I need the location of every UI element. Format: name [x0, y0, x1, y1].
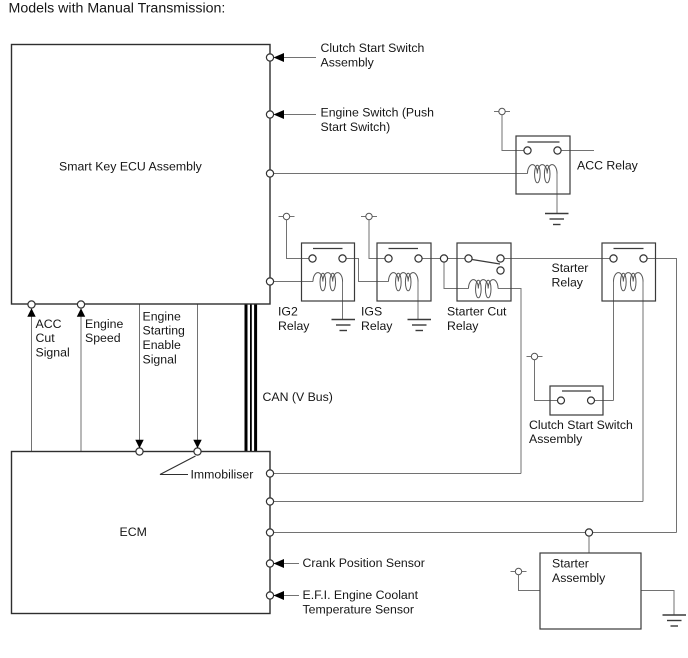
svg-text:Crank Position Sensor: Crank Position Sensor — [303, 556, 425, 570]
svg-text:Cut: Cut — [36, 331, 56, 345]
svg-text:Smart Key ECU Assembly: Smart Key ECU Assembly — [59, 160, 203, 174]
svg-text:Engine Switch (Push: Engine Switch (Push — [321, 106, 435, 120]
svg-text:Models with Manual Transmissio: Models with Manual Transmission: — [9, 1, 226, 17]
svg-text:Assembly: Assembly — [529, 432, 583, 446]
svg-text:Speed: Speed — [85, 331, 121, 345]
svg-text:IG2: IG2 — [278, 305, 298, 319]
svg-text:ECM: ECM — [120, 525, 147, 539]
svg-text:Clutch Start Switch: Clutch Start Switch — [321, 41, 425, 55]
svg-text:Starter Cut: Starter Cut — [447, 305, 507, 319]
svg-text:Starting: Starting — [143, 324, 186, 338]
svg-text:Relay: Relay — [278, 319, 310, 333]
svg-text:IGS: IGS — [361, 305, 382, 319]
svg-text:Assembly: Assembly — [552, 571, 606, 585]
svg-text:Engine: Engine — [85, 317, 123, 331]
svg-text:Temperature Sensor: Temperature Sensor — [303, 602, 414, 616]
svg-text:Relay: Relay — [361, 319, 393, 333]
svg-text:Starter: Starter — [552, 261, 589, 275]
svg-text:Start Switch): Start Switch) — [321, 120, 391, 134]
svg-text:CAN (V Bus): CAN (V Bus) — [263, 390, 333, 404]
svg-text:Clutch Start Switch: Clutch Start Switch — [529, 418, 633, 432]
svg-text:Signal: Signal — [36, 346, 70, 360]
svg-text:Engine: Engine — [143, 309, 181, 323]
svg-text:Assembly: Assembly — [321, 55, 375, 69]
svg-text:Relay: Relay — [447, 319, 479, 333]
svg-text:Starter: Starter — [552, 556, 589, 570]
svg-text:ACC: ACC — [36, 317, 62, 331]
svg-text:Signal: Signal — [143, 353, 177, 367]
svg-text:E.F.I. Engine Coolant: E.F.I. Engine Coolant — [303, 588, 419, 602]
svg-text:Immobiliser: Immobiliser — [191, 468, 254, 482]
svg-text:Relay: Relay — [552, 275, 584, 289]
svg-text:Enable: Enable — [143, 338, 181, 352]
svg-text:ACC Relay: ACC Relay — [577, 158, 639, 172]
